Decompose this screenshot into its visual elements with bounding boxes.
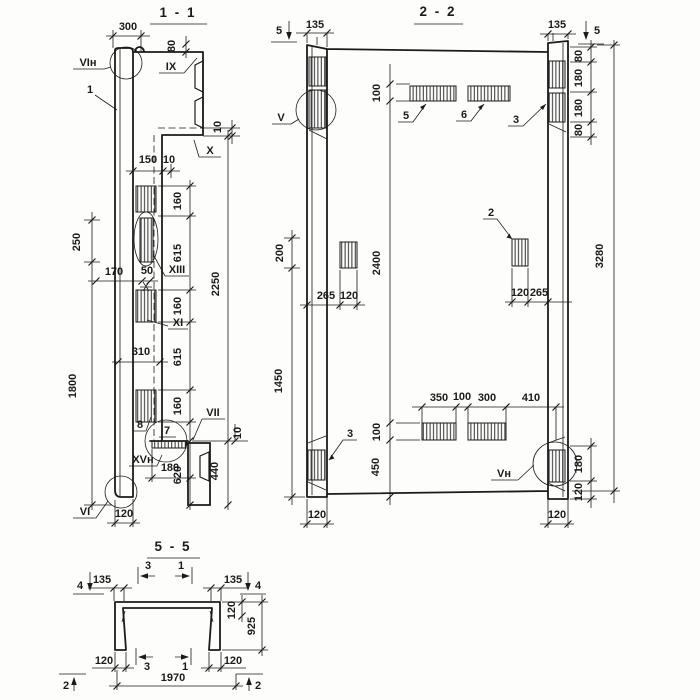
channel-profile: [115, 602, 220, 650]
dim-180-c: 180: [573, 455, 585, 473]
mark-XIII: XIII: [169, 264, 186, 276]
cut-mark-5-right: 5: [594, 25, 600, 37]
dim-180-b: 180: [573, 99, 585, 117]
dim-350: 350: [430, 392, 448, 404]
cut-mark-1-bottom: 1: [182, 661, 188, 673]
dim-160-a: 160: [172, 192, 184, 210]
dim-250: 250: [71, 233, 83, 251]
dim-80: 80: [166, 40, 178, 52]
dim-10-step: 10: [163, 154, 175, 166]
dim-100-mid: 100: [453, 391, 471, 403]
mark-XVh: XVн: [132, 454, 153, 466]
cut-mark-4-left: 4: [77, 580, 84, 592]
mark-VI: VI: [80, 506, 90, 518]
dim-135-left: 135: [93, 574, 111, 586]
dim-50: 50: [141, 265, 153, 277]
dim-265-left: 265: [317, 290, 335, 302]
cut-mark-3-top: 3: [145, 560, 151, 572]
dim-170: 170: [105, 266, 123, 278]
dim-180: 180: [161, 462, 179, 474]
section-title: 5 - 5: [154, 539, 191, 554]
callout-3-right: 3: [513, 114, 519, 126]
dim-310: 310: [132, 346, 150, 358]
dim-440: 440: [209, 462, 221, 480]
dim-135-right: 135: [224, 574, 242, 586]
dim-1800: 1800: [67, 374, 79, 398]
dim-120-leg-right: 120: [224, 655, 242, 667]
callout-6: 6: [461, 109, 467, 121]
dim-120-c: 120: [573, 483, 585, 501]
dim-100-bottom: 100: [371, 423, 383, 441]
dim-615-a: 615: [172, 244, 184, 262]
dim-10-lip: 10: [212, 121, 224, 133]
dim-120-base-right: 120: [548, 509, 566, 521]
dim-2400: 2400: [371, 251, 383, 275]
cut-mark-2-right: 2: [255, 680, 261, 692]
dim-135-left: 135: [306, 19, 324, 31]
dim-80-a: 80: [573, 50, 585, 62]
dim-300: 300: [478, 392, 496, 404]
cut-mark-2-left: 2: [63, 680, 69, 692]
callout-5: 5: [403, 110, 409, 122]
section-title: 1 - 1: [159, 5, 196, 20]
dim-120-leg-left: 120: [95, 655, 113, 667]
section-2-2: 2 - 2 5 5 135 135 100 2400 100 450 200 1…: [271, 4, 620, 528]
mark-X: X: [206, 145, 214, 157]
dim-135-right: 135: [548, 19, 566, 31]
cut-mark-3-bottom: 3: [144, 661, 150, 673]
dim-450: 450: [370, 458, 382, 476]
dim-1450: 1450: [273, 369, 285, 393]
callout-1: 1: [87, 84, 93, 96]
mark-Vh: Vн: [497, 468, 511, 480]
dim-160-b: 160: [172, 297, 184, 315]
mark-IX: IX: [166, 61, 177, 73]
dim-160-c: 160: [172, 397, 184, 415]
dim-180-a: 180: [573, 69, 585, 87]
dim-120-base: 120: [115, 508, 133, 520]
callout-2: 2: [488, 207, 494, 219]
panel-profile-outline: [115, 47, 210, 505]
callout-7: 7: [164, 425, 170, 437]
dim-150: 150: [139, 154, 157, 166]
dim-2250: 2250: [210, 272, 222, 296]
mark-VII: VII: [206, 407, 219, 419]
mark-V: V: [277, 112, 285, 124]
dim-80-b: 80: [573, 124, 585, 136]
callout-8: 8: [137, 419, 143, 431]
callout-3-left: 3: [347, 428, 353, 440]
dim-200: 200: [274, 244, 286, 262]
dim-615-b: 615: [172, 348, 184, 366]
mark-VIh: VIн: [79, 57, 96, 69]
section-1-1: 1 - 1 300 80 10 150 10 250 1800 160 615 …: [67, 5, 248, 527]
dim-300: 300: [119, 21, 137, 33]
cut-mark-1-top: 1: [178, 560, 184, 572]
dim-120-flange: 120: [226, 601, 238, 619]
structural-panel-drawing: 1 - 1 300 80 10 150 10 250 1800 160 615 …: [0, 0, 700, 700]
dim-925: 925: [246, 617, 258, 635]
dim-3280: 3280: [594, 244, 606, 268]
dim-10-notch: 10: [232, 427, 244, 439]
corner-gussets: [122, 611, 213, 622]
dim-120-right: 120: [511, 287, 529, 299]
section-title: 2 - 2: [419, 4, 456, 19]
cut-mark-4-right: 4: [255, 580, 262, 592]
section-5-5: 5 - 5 135 135 120 925 120 120 1970 4 4 3…: [59, 539, 268, 692]
dim-1970: 1970: [161, 672, 185, 684]
dim-410: 410: [522, 392, 540, 404]
dim-265-right: 265: [530, 287, 548, 299]
embedded-plates: [308, 57, 565, 482]
cut-mark-5-left: 5: [276, 25, 282, 37]
drawing-sheet: 1 - 1 300 80 10 150 10 250 1800 160 615 …: [0, 0, 700, 700]
dim-100-top: 100: [371, 84, 383, 102]
dim-120-left: 120: [340, 290, 358, 302]
mark-XI: XI: [173, 317, 183, 329]
dim-120-base-left: 120: [308, 509, 326, 521]
